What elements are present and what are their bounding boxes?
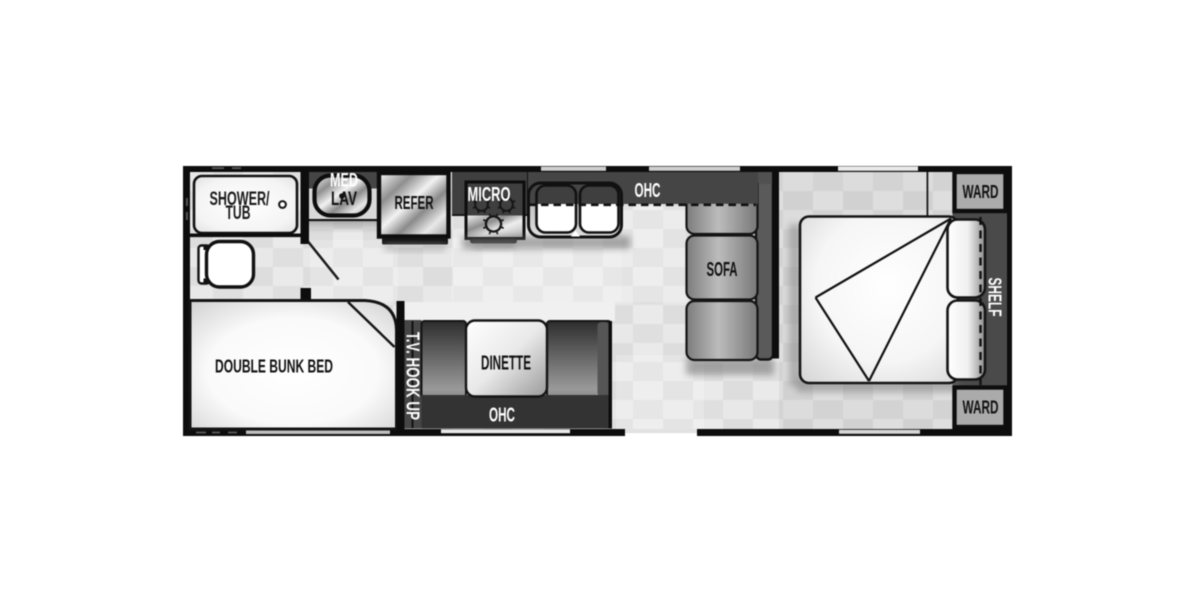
svg-text:WARD: WARD — [963, 182, 999, 202]
svg-text:OHC: OHC — [489, 405, 515, 427]
svg-text:SHELF: SHELF — [985, 278, 1006, 317]
svg-text:DOUBLE BUNK BED: DOUBLE BUNK BED — [215, 356, 333, 377]
svg-text:T.V. HOOK UP: T.V. HOOK UP — [403, 332, 424, 420]
svg-text:REFER: REFER — [395, 192, 434, 213]
svg-text:LAV: LAV — [331, 189, 357, 210]
svg-text:TUB: TUB — [226, 203, 251, 224]
svg-text:MICRO: MICRO — [468, 184, 511, 206]
svg-text:OHC: OHC — [635, 179, 661, 202]
svg-text:WARD: WARD — [963, 398, 999, 418]
svg-text:SOFA: SOFA — [707, 258, 738, 281]
svg-text:DINETTE: DINETTE — [481, 353, 531, 375]
